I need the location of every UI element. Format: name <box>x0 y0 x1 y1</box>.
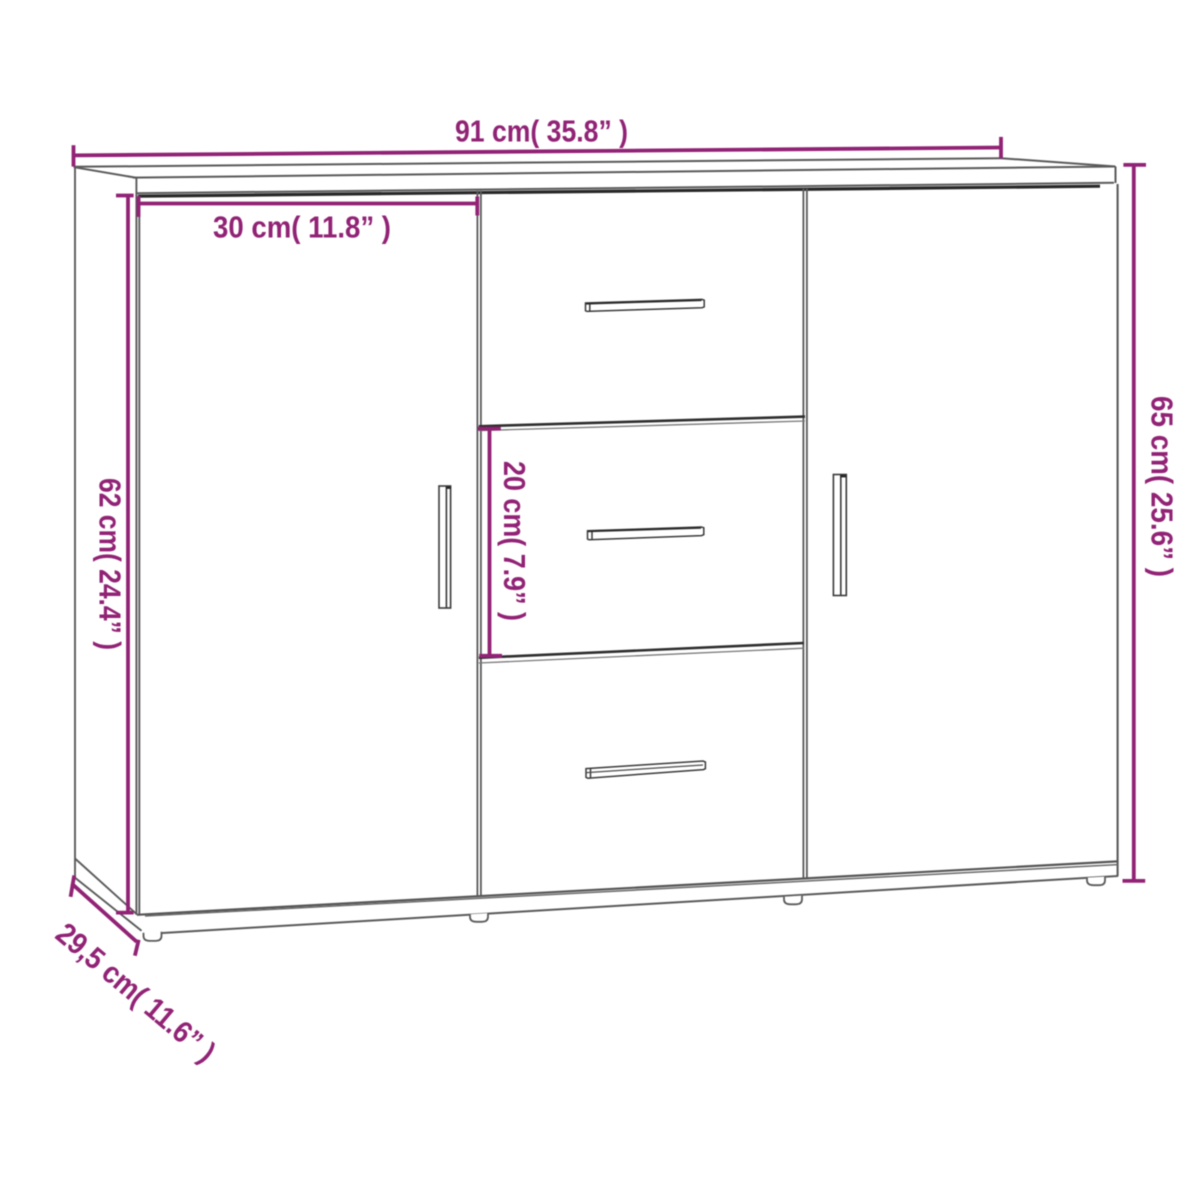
svg-text:20 cm( 7.9” ): 20 cm( 7.9” ) <box>497 461 531 621</box>
svg-text:62 cm( 24.4” ): 62 cm( 24.4” ) <box>93 478 127 650</box>
svg-text:91 cm( 35.8” ): 91 cm( 35.8” ) <box>455 115 628 149</box>
svg-text:30 cm( 11.8” ): 30 cm( 11.8” ) <box>213 211 391 245</box>
svg-text:65 cm( 25.6” ): 65 cm( 25.6” ) <box>1145 396 1179 577</box>
